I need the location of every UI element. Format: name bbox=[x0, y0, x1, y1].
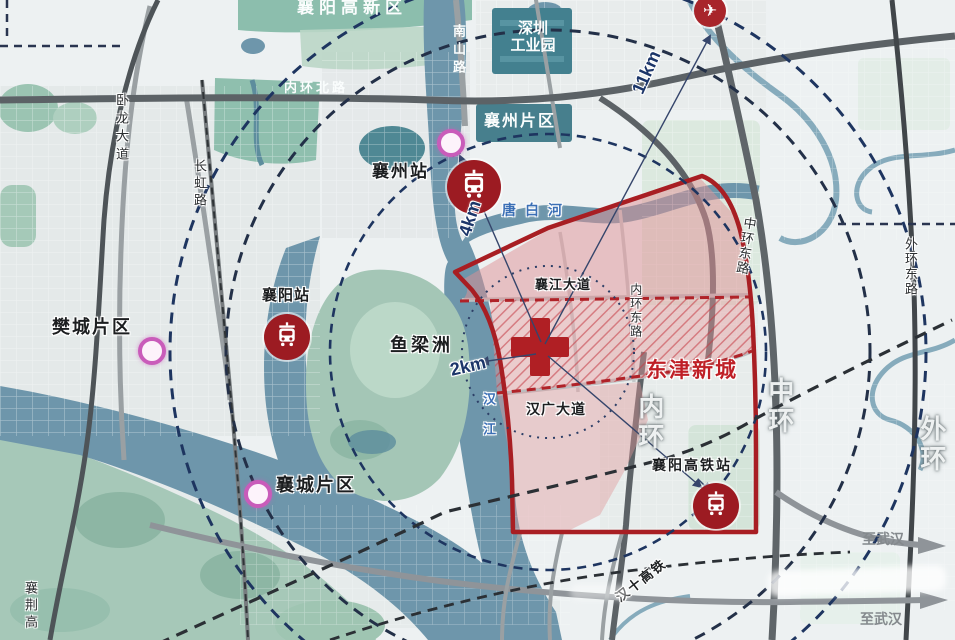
poi-circle-fancheng bbox=[138, 337, 166, 365]
city-planning-map: ✈ 襄阳高新区 深圳 工业园 南山路 内环北路 襄州片区 襄州站 唐白河 卧龙大… bbox=[0, 0, 955, 640]
airplane-glyph: ✈ bbox=[703, 1, 717, 21]
river-label-hanjiang: 汉江 bbox=[480, 392, 495, 452]
district-label-shenzhen-park-line1: 深圳 bbox=[504, 20, 562, 37]
road-label-hanguang-ave: 汉广大道 bbox=[526, 401, 586, 417]
station-label-xiangyang: 襄阳站 bbox=[262, 287, 310, 304]
road-label-nanshan: 南山路 bbox=[450, 24, 465, 78]
station-label-hsr: 襄阳高铁站 bbox=[652, 457, 732, 473]
to-wuhan-label-lower: 至武汉 bbox=[860, 611, 902, 627]
district-label-gaoxin: 襄阳高新区 bbox=[297, 0, 407, 18]
island-label-yuliangzhou: 鱼梁洲 bbox=[390, 335, 453, 356]
to-wuhan-label-upper: 至武汉 bbox=[862, 531, 904, 547]
road-label-neihuan-east: 内环东路 bbox=[628, 283, 642, 339]
watermark-smear-small bbox=[570, 584, 630, 600]
station-label-xiangzhou: 襄州站 bbox=[372, 162, 429, 182]
poi-circle-xiangzhou bbox=[437, 129, 465, 157]
xiangyang-station-icon bbox=[264, 314, 310, 360]
train-glyph bbox=[270, 320, 304, 354]
road-label-wolong: 卧龙大道 bbox=[113, 93, 128, 165]
road-label-changhong: 长虹路 bbox=[191, 159, 206, 210]
road-label-xiangjiang-ave: 襄江大道 bbox=[535, 278, 591, 293]
base-map bbox=[0, 0, 955, 640]
train-glyph bbox=[699, 489, 733, 523]
district-label-fancheng: 樊城片区 bbox=[52, 317, 132, 338]
ring-label-middle: 中环 bbox=[764, 377, 794, 437]
hsr-station-icon bbox=[693, 483, 739, 529]
river-label-tangbai: 唐白河 bbox=[502, 202, 571, 218]
district-label-dongjin: 东津新城 bbox=[646, 359, 738, 383]
road-label-waihuan-east: 外环东路 bbox=[902, 237, 917, 297]
road-label-xiangjing-hw: 襄荆高 bbox=[22, 581, 37, 632]
district-label-xiangcheng: 襄城片区 bbox=[276, 475, 356, 496]
district-label-shenzhen-park-line2: 工业园 bbox=[504, 37, 562, 54]
road-label-neihuan-north: 内环北路 bbox=[284, 81, 348, 96]
poi-circle-xiangcheng bbox=[244, 480, 272, 508]
ring-label-outer: 外环 bbox=[916, 415, 946, 475]
district-label-xiangzhou: 襄州片区 bbox=[484, 113, 556, 131]
ring-label-inner: 内环 bbox=[634, 393, 664, 453]
